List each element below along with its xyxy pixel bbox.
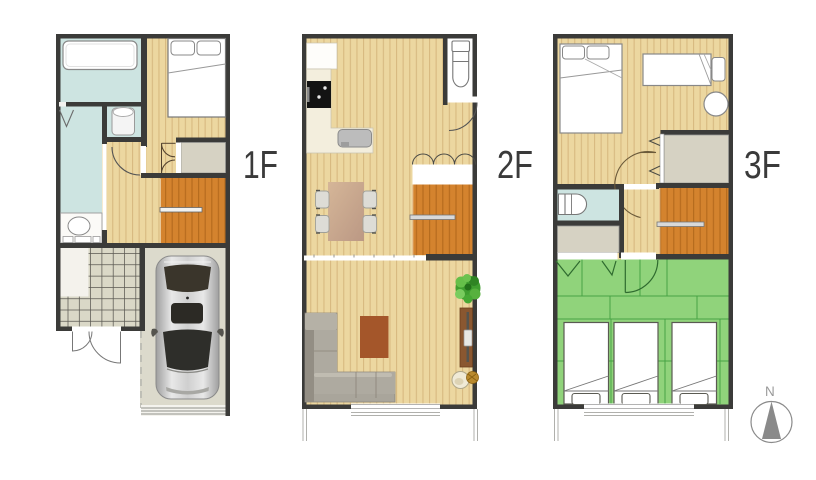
svg-text:N: N [765, 384, 775, 399]
svg-text:2F: 2F [497, 144, 533, 187]
svg-text:1F: 1F [243, 144, 278, 187]
svg-text:3F: 3F [744, 144, 781, 187]
